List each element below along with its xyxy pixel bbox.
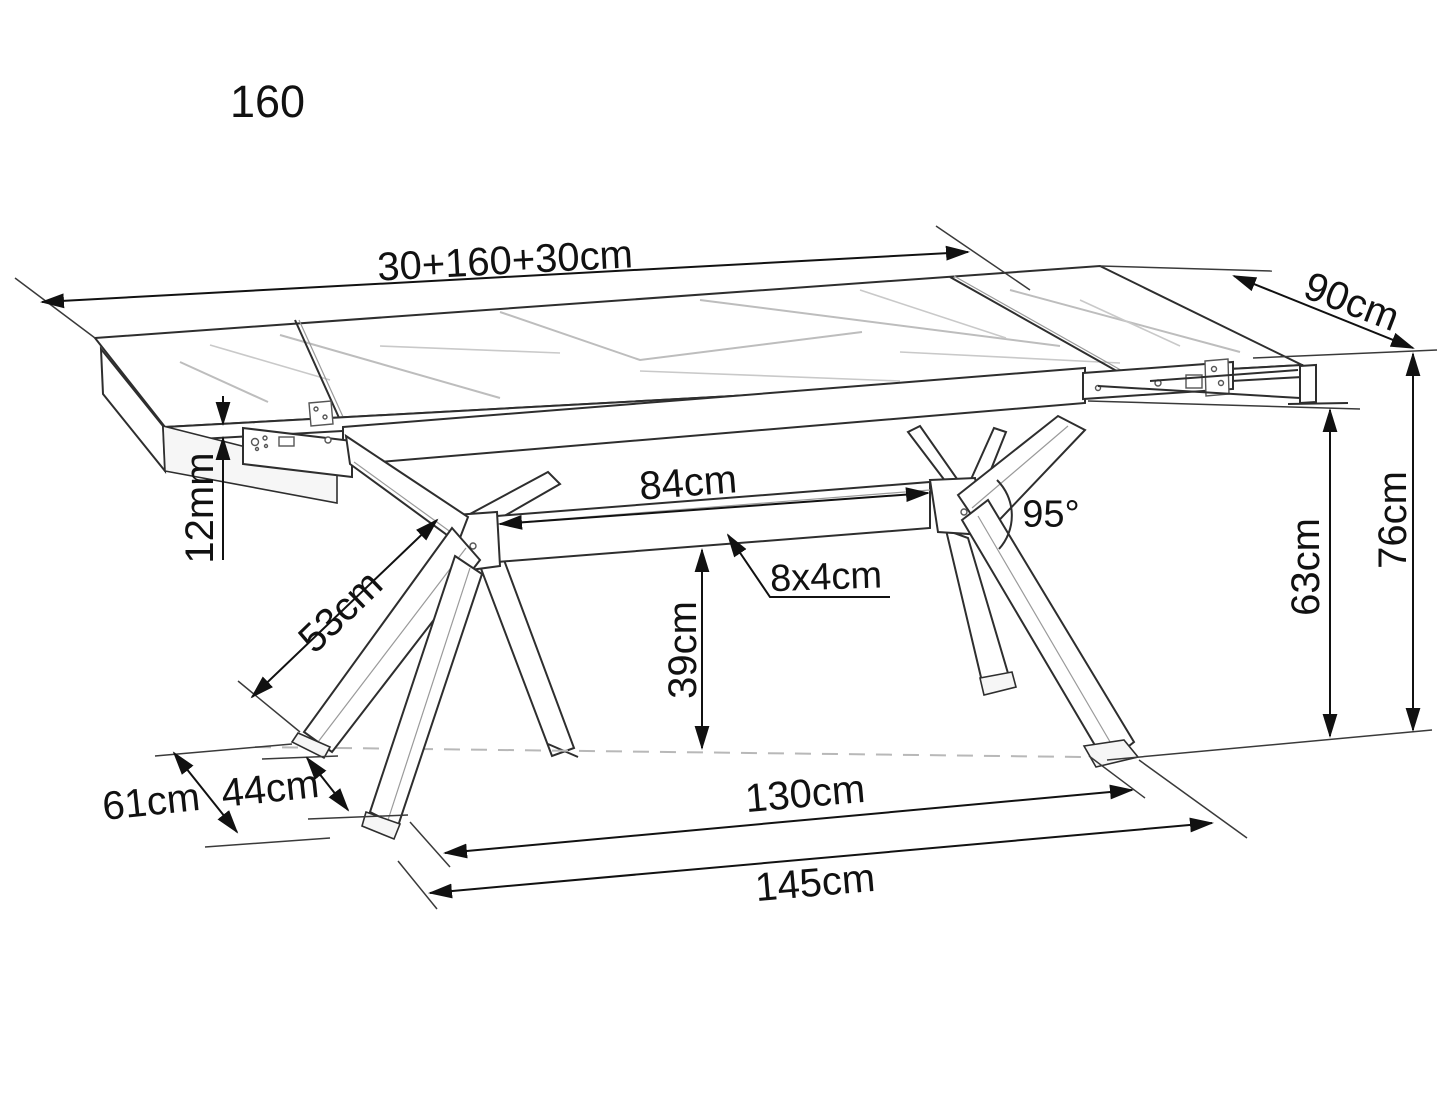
left-rear-leg xyxy=(480,560,578,757)
dim-label-total-length: 30+160+30cm xyxy=(376,232,634,289)
dim-table-height: 76cm xyxy=(1107,354,1432,760)
floor-reference-line xyxy=(255,747,1082,757)
dim-beam-clearance: 39cm xyxy=(661,550,705,748)
dim-label-beam-section: 8x4cm xyxy=(769,554,882,600)
dim-label-foot-depth-inner: 44cm xyxy=(219,762,321,816)
dim-feet-span: 130cm xyxy=(410,756,1145,867)
dim-label-beam-span: 84cm xyxy=(638,457,739,509)
dim-label-foot-depth-outer: 61cm xyxy=(100,775,202,829)
dim-label-underframe-height: 63cm xyxy=(1284,518,1328,616)
dim-label-feet-span-outer: 145cm xyxy=(753,856,876,910)
diagram-svg: 30+160+30cm 90cm 12mm 53cm 84cm 95° 8x4c… xyxy=(0,0,1445,1105)
dim-label-depth: 90cm xyxy=(1298,264,1405,340)
table-dimension-diagram: 30+160+30cm 90cm 12mm 53cm 84cm 95° 8x4c… xyxy=(0,0,1445,1105)
model-code-label: 160 xyxy=(230,76,305,127)
seam-hinge xyxy=(309,401,333,426)
dim-label-beam-clearance: 39cm xyxy=(661,601,705,699)
dim-label-leg-angle: 95° xyxy=(1022,493,1079,535)
dim-beam-section: 8x4cm xyxy=(728,535,890,600)
dim-label-feet-span: 130cm xyxy=(743,767,866,821)
dim-label-top-thickness: 12mm xyxy=(178,452,222,563)
dim-underframe-height: 63cm xyxy=(1088,401,1360,736)
dim-label-table-height: 76cm xyxy=(1371,471,1415,569)
